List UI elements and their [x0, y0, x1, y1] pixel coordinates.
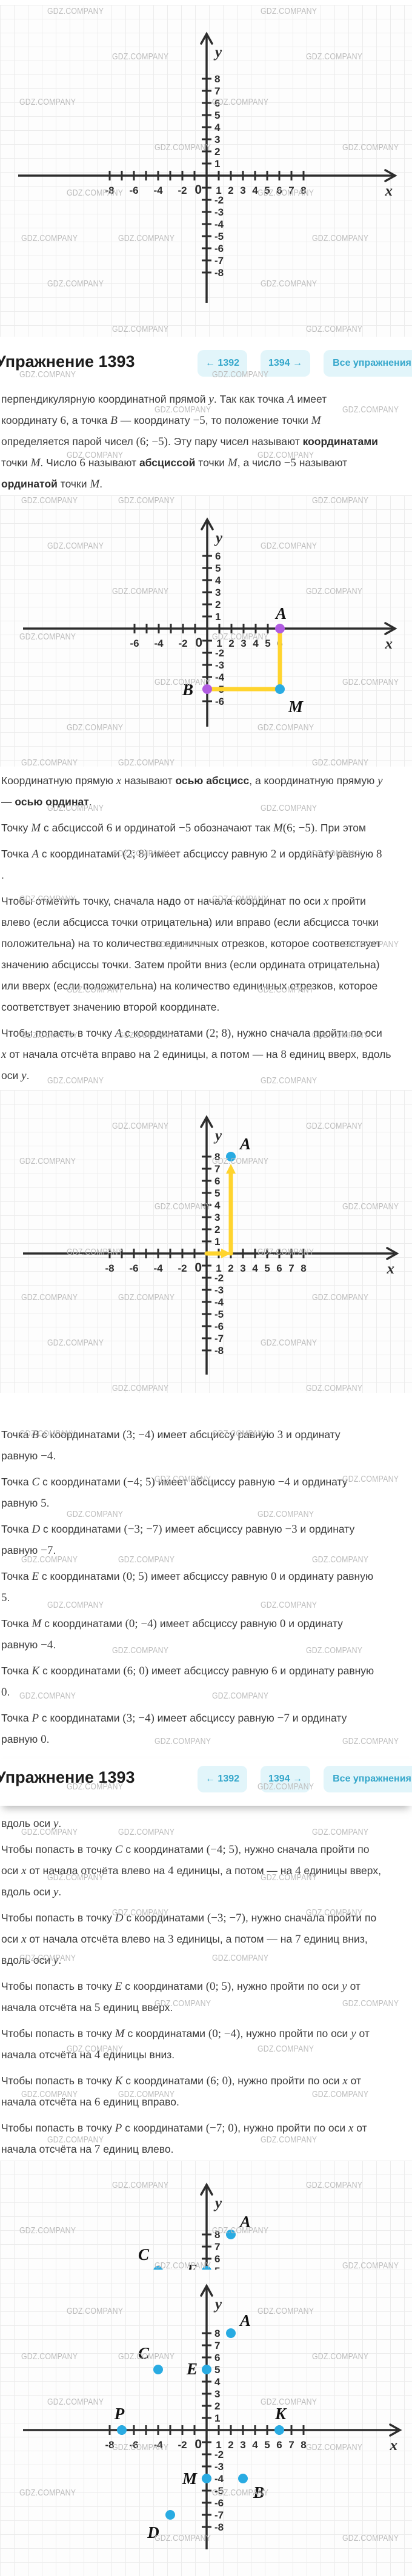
- plot-point: [238, 2474, 248, 2483]
- text-line: Чтобы попасть в точку P с координатами (…: [1, 2118, 412, 2139]
- plot-point: [226, 2230, 236, 2239]
- paragraph: Точка E с координатами (0; 5) имеет абсц…: [1, 1566, 412, 1608]
- paragraph: Точка B с координатами (3; −4) имеет абс…: [1, 1424, 412, 1467]
- text-line: Точка P с координатами (3; −4) имеет абс…: [1, 1708, 412, 1729]
- all-exercises-button[interactable]: Все упражнения: [324, 350, 412, 377]
- paragraph: Чтобы попасть в точку K с координатами (…: [1, 2070, 412, 2113]
- text-line: определяется парой чисел (6; −5). Эту па…: [1, 431, 412, 452]
- text-line: равную 0.: [1, 1729, 412, 1750]
- text-line: Точка C с координатами (−4; 5) имеет абс…: [1, 1471, 412, 1493]
- text-line: начала отсчёта на 5 единиц вверх.: [1, 1997, 412, 2018]
- y-tick-label: 5: [214, 1187, 220, 1199]
- text-line: Чтобы попасть в точку A с координатами (…: [1, 1023, 412, 1044]
- y-tick-label: -2: [214, 194, 224, 206]
- paragraph: Чтобы попасть в точку C с координатами (…: [1, 1839, 412, 1903]
- x-tick-label: -4: [153, 2439, 163, 2451]
- next-exercise-button[interactable]: 1394 →: [261, 1766, 310, 1792]
- text-line: вдоль оси y.: [1, 1950, 412, 1971]
- y-tick-label: 2: [215, 599, 221, 610]
- text-line: координату 6, а точка B — координату −5,…: [1, 410, 412, 431]
- y-tick-label: 2: [214, 146, 220, 157]
- coordinate-plane-a28: -8-6-4-21234567887654321-2-3-4-5-6-7-80x…: [0, 1090, 412, 1393]
- point-label: A: [239, 2213, 251, 2231]
- plot-point: [226, 1152, 236, 1161]
- y-axis-title: y: [213, 44, 222, 61]
- origin-label: 0: [194, 183, 202, 197]
- y-tick-label: 6: [214, 1175, 220, 1187]
- plot-point: [274, 2425, 284, 2435]
- y-tick-label: -8: [214, 267, 224, 279]
- x-tick-label: 8: [301, 2439, 306, 2451]
- text-line: вдоль оси y.: [1, 1813, 412, 1834]
- text-line: равную −4.: [1, 1634, 412, 1656]
- y-tick-label: 7: [214, 85, 220, 97]
- paragraph: Координатную прямую x называют осью абсц…: [1, 770, 412, 813]
- y-axis-title: y: [213, 1128, 222, 1144]
- paragraph: перпендикулярную координатной прямой y. …: [1, 389, 412, 495]
- text-line: Чтобы попасть в точку M с координатами (…: [1, 2023, 412, 2044]
- paragraph: Точка D с координатами (−3; −7) имеет аб…: [1, 1519, 412, 1561]
- paragraph: Чтобы отметить точку, сначала надо от на…: [1, 891, 412, 1018]
- coordinate-plane-answer: -8-6-4-21234567887654321-2-3-4-5-6-7-80x…: [0, 2270, 412, 2576]
- paragraph: Точку M с абсциссой 6 и ординатой −5 обо…: [1, 817, 412, 839]
- x-tick-label: 3: [241, 638, 246, 649]
- y-tick-label: 6: [214, 97, 220, 109]
- point-label: B: [253, 2483, 264, 2502]
- path-arrow-head: [226, 1164, 236, 1174]
- y-tick-label: 1: [214, 1236, 220, 1247]
- y-tick-label: 4: [214, 2376, 221, 2388]
- y-tick-label: -2: [214, 1272, 224, 1284]
- x-tick-label: -4: [153, 185, 163, 196]
- x-axis-title: x: [385, 183, 393, 199]
- coordinate-plane-svg: -8-6-4-21234567887654321-2-3-4-5-6-7-80x…: [0, 5, 412, 337]
- x-tick-label: 6: [276, 2439, 282, 2451]
- point-label: A: [239, 1135, 251, 1153]
- y-tick-label: -7: [214, 2509, 224, 2521]
- point-label: A: [274, 604, 287, 623]
- y-axis-title: y: [213, 2195, 222, 2211]
- next-exercise-button[interactable]: 1394 →: [261, 350, 310, 377]
- x-tick-label: 4: [252, 1263, 258, 1274]
- paragraph: Точка C с координатами (−4; 5) имеет абс…: [1, 1471, 412, 1514]
- x-axis-title: x: [387, 1261, 395, 1277]
- y-tick-label: 2: [214, 2400, 220, 2412]
- text-line: 0.: [1, 1682, 412, 1703]
- text-line: оси x от начала отсчёта влево на 4 едини…: [1, 1860, 412, 1881]
- text-line: оси y.: [1, 1065, 412, 1086]
- text-line: Чтобы попасть в точку K с координатами (…: [1, 2070, 412, 2092]
- x-tick-label: 2: [228, 1263, 233, 1274]
- x-tick-label: -2: [178, 638, 187, 649]
- point-label: C: [138, 2344, 150, 2362]
- point-label: P: [114, 2405, 125, 2423]
- y-tick-label: 6: [214, 2253, 220, 2265]
- y-tick-label: -3: [214, 206, 224, 218]
- text-line: Точка B с координатами (3; −4) имеет абс…: [1, 1424, 412, 1445]
- text-line: влево (если абсцисса точки отрицательна)…: [1, 912, 412, 933]
- plot-point: [165, 2510, 175, 2520]
- x-tick-label: 2: [228, 638, 234, 649]
- y-tick-label: 3: [214, 1212, 220, 1223]
- plot-point: [202, 2474, 211, 2483]
- plot-point: [117, 2425, 127, 2435]
- x-tick-label: 6: [276, 1263, 282, 1274]
- x-tick-label: 2: [228, 2439, 233, 2451]
- point-label: E: [186, 2261, 198, 2270]
- x-tick-label: -8: [105, 2439, 114, 2451]
- coordinate-plane-svg: -8-6-4-21234567887654321-2-3-4-5-6-7-80x…: [0, 2270, 412, 2576]
- plot-point: [153, 2365, 163, 2374]
- y-tick-label: 4: [215, 575, 221, 586]
- point-label: A: [239, 2311, 251, 2330]
- y-tick-label: -7: [214, 1333, 224, 1344]
- y-tick-label: -6: [215, 696, 224, 707]
- paragraph: вдоль оси y.: [1, 1813, 412, 1834]
- text-line: равную −4.: [1, 1445, 412, 1467]
- text-line: 5.: [1, 1587, 412, 1608]
- y-tick-label: -8: [214, 1345, 224, 1356]
- plot-point: [226, 2328, 236, 2338]
- y-axis-title: y: [213, 2296, 222, 2313]
- paragraph: Точка P с координатами (3; −4) имеет абс…: [1, 1708, 412, 1750]
- coordinate-plane-svg: -6-4-2123456654321-2-3-4-5-60xyABM: [0, 495, 412, 767]
- x-tick-label: -6: [129, 1263, 138, 1274]
- y-tick-label: 2: [214, 1224, 220, 1235]
- paragraph: Точка K с координатами (6; 0) имеет абсц…: [1, 1660, 412, 1703]
- x-tick-label: -6: [130, 638, 139, 649]
- y-tick-label: 5: [214, 2364, 220, 2376]
- origin-label: 0: [195, 636, 202, 650]
- text-line: Точка K с координатами (6; 0) имеет абсц…: [1, 1660, 412, 1682]
- x-tick-label: 3: [240, 185, 245, 196]
- y-tick-label: 1: [214, 158, 220, 170]
- y-tick-label: 8: [214, 73, 220, 85]
- text-line: Точка E с координатами (0; 5) имеет абсц…: [1, 1566, 412, 1587]
- x-tick-label: 8: [301, 185, 306, 196]
- x-axis-title: x: [385, 636, 393, 652]
- text-line: оси x от начала отсчёта влево на 3 едини…: [1, 1929, 412, 1950]
- y-tick-label: 4: [214, 1200, 221, 1211]
- x-tick-label: 5: [264, 185, 270, 196]
- y-tick-label: -4: [214, 1296, 224, 1308]
- coordinate-plane-svg: -8-6-4-21234567887654321-2-3-4-5-6-7-80x…: [0, 2161, 412, 2270]
- point-label: M: [288, 698, 304, 716]
- origin-label: 0: [194, 2437, 202, 2451]
- text-line: x от начала отсчёта вправо на 2 единицы,…: [1, 1044, 412, 1065]
- y-tick-label: -5: [214, 2485, 224, 2497]
- y-tick-label: -7: [214, 255, 224, 266]
- x-tick-label: 3: [240, 2439, 245, 2451]
- text-line: положительна) на то количество единичных…: [1, 933, 412, 954]
- x-tick-label: -4: [154, 638, 164, 649]
- text-line: ординатой точки M.: [1, 474, 412, 495]
- text-line: начала отсчёта на 6 единиц вправо.: [1, 2092, 412, 2113]
- text-line: .: [1, 865, 412, 886]
- y-tick-label: 7: [214, 2340, 220, 2351]
- point-label: C: [138, 2245, 150, 2264]
- plot-point: [202, 684, 212, 694]
- text-line: соответствует значению второй координате…: [1, 997, 412, 1018]
- coordinate-plane-svg: -8-6-4-21234567887654321-2-3-4-5-6-7-80x…: [0, 1090, 412, 1393]
- y-tick-label: -4: [215, 672, 225, 683]
- explanation-text-a: перпендикулярную координатной прямой y. …: [0, 389, 412, 495]
- x-tick-label: -4: [153, 1263, 163, 1274]
- y-axis-title: y: [214, 530, 223, 546]
- x-tick-label: 8: [301, 1263, 306, 1274]
- point-label: D: [147, 2523, 159, 2541]
- x-tick-label: 7: [288, 2439, 294, 2451]
- x-tick-label: -6: [129, 185, 138, 196]
- y-tick-label: -3: [215, 659, 224, 671]
- y-tick-label: 3: [215, 587, 221, 598]
- right-arrow-icon: →: [293, 358, 302, 368]
- text-line: Точка A с координатами (2; 8) имеет абсц…: [1, 844, 412, 865]
- paragraph: Чтобы попасть в точку A с координатами (…: [1, 1023, 412, 1086]
- y-tick-label: 6: [214, 2352, 220, 2363]
- y-tick-label: -4: [214, 2473, 224, 2485]
- paragraph: Точка A с координатами (2; 8) имеет абсц…: [1, 844, 412, 886]
- text-line: Чтобы отметить точку, сначала надо от на…: [1, 891, 412, 912]
- y-tick-label: -4: [214, 219, 224, 230]
- x-tick-label: 5: [264, 1263, 270, 1274]
- plot-point: [275, 624, 285, 633]
- x-tick-label: 2: [228, 185, 233, 196]
- prev-exercise-number: 1392: [218, 358, 239, 368]
- paragraph: Чтобы попасть в точку D с координатами (…: [1, 1907, 412, 1971]
- paragraph: Чтобы попасть в точку M с координатами (…: [1, 2023, 412, 2066]
- text-line: Чтобы попасть в точку C с координатами (…: [1, 1839, 412, 1860]
- plot-point: [202, 2365, 211, 2374]
- text-line: значению абсциссы точки. Затем пройти вн…: [1, 954, 412, 976]
- y-tick-label: 1: [214, 2413, 220, 2424]
- y-tick-label: 6: [215, 550, 221, 562]
- left-arrow-icon: ←: [205, 358, 215, 368]
- point-label: B: [182, 681, 193, 699]
- paragraph: Чтобы попасть в точку P с координатами (…: [1, 2118, 412, 2160]
- text-line: начала отсчёта на 4 единицы вниз.: [1, 2044, 412, 2066]
- y-tick-label: 5: [214, 2265, 220, 2270]
- text-line: Точка M с координатами (0; −4) имеет абс…: [1, 1613, 412, 1634]
- explanation-text-b: Координатную прямую x называют осью абсц…: [0, 770, 412, 1086]
- y-tick-label: -2: [214, 2449, 224, 2460]
- explanation-text-c: Точка B с координатами (3; −4) имеет абс…: [0, 1424, 412, 1750]
- left-arrow-icon: ←: [205, 1774, 215, 1784]
- x-tick-label: 4: [252, 185, 258, 196]
- origin-label: 0: [194, 1261, 202, 1275]
- right-arrow-icon: →: [293, 1774, 302, 1784]
- y-tick-label: -6: [214, 243, 224, 254]
- text-line: начала отсчёта на 7 единиц влево.: [1, 2139, 412, 2160]
- prev-exercise-button[interactable]: ← 1392: [198, 350, 247, 377]
- x-tick-label: -2: [178, 1263, 187, 1274]
- y-tick-label: 3: [214, 134, 220, 145]
- text-line: вдоль оси y.: [1, 1881, 412, 1903]
- x-tick-label: -6: [129, 2439, 138, 2451]
- text-line: точки M. Число 6 называют абсциссой точк…: [1, 452, 412, 474]
- text-line: Координатную прямую x называют осью абсц…: [1, 770, 412, 791]
- y-tick-label: 5: [215, 563, 221, 574]
- point-label: K: [274, 2405, 287, 2423]
- x-tick-label: 4: [252, 2439, 258, 2451]
- exercise-header-sticky: Упражнение 1393 ← 1392 1394 → Все упражн…: [0, 1759, 412, 1806]
- exercise-page: -8-6-4-21234567887654321-2-3-4-5-6-7-80x…: [0, 0, 412, 2576]
- text-line: Точка D с координатами (−3; −7) имеет аб…: [1, 1519, 412, 1540]
- plot-point: [275, 684, 285, 694]
- y-tick-label: -6: [214, 1321, 224, 1332]
- y-tick-label: 8: [214, 1151, 220, 1163]
- y-tick-label: 5: [214, 110, 220, 121]
- text-line: Чтобы попасть в точку E с координатами (…: [1, 1976, 412, 1997]
- y-tick-label: -5: [214, 1309, 224, 1320]
- y-tick-label: -8: [214, 2522, 224, 2533]
- y-tick-label: 4: [214, 122, 221, 133]
- x-tick-label: 7: [288, 185, 294, 196]
- x-tick-label: -2: [178, 185, 187, 196]
- coordinate-plane-answer-partial: -8-6-4-21234567887654321-2-3-4-5-6-7-80x…: [0, 2161, 412, 2270]
- x-tick-label: 3: [240, 1263, 245, 1274]
- explanation-text-d: вдоль оси y.Чтобы попасть в точку C с ко…: [0, 1813, 412, 2160]
- text-line: Чтобы попасть в точку D с координатами (…: [1, 1907, 412, 1929]
- text-line: Точку M с абсциссой 6 и ординатой −5 обо…: [1, 817, 412, 839]
- coordinate-plane-empty: -8-6-4-21234567887654321-2-3-4-5-6-7-80x…: [0, 5, 412, 337]
- all-exercises-button[interactable]: Все упражнения: [324, 1766, 412, 1792]
- x-tick-label: -2: [178, 2439, 187, 2451]
- prev-exercise-button[interactable]: ← 1392: [198, 1766, 247, 1792]
- x-tick-label: 7: [288, 1263, 294, 1274]
- prev-exercise-number: 1392: [218, 1774, 239, 1784]
- y-tick-label: -6: [214, 2497, 224, 2509]
- point-label: E: [186, 2360, 198, 2378]
- next-exercise-number: 1394: [268, 1774, 290, 1784]
- text-line: перпендикулярную координатной прямой y. …: [1, 389, 412, 410]
- paragraph: Точка M с координатами (0; −4) имеет абс…: [1, 1613, 412, 1656]
- y-tick-label: -2: [215, 647, 224, 659]
- exercise-header: Упражнение 1393 ← 1392 1394 → Все упражн…: [0, 343, 412, 380]
- text-line: равную 5.: [1, 1493, 412, 1514]
- y-tick-label: 8: [214, 2229, 220, 2241]
- y-tick-label: 8: [214, 2328, 220, 2339]
- x-tick-label: 5: [264, 2439, 270, 2451]
- y-tick-label: 1: [215, 611, 221, 623]
- paragraph: Чтобы попасть в точку E с координатами (…: [1, 1976, 412, 2018]
- x-tick-label: 6: [276, 185, 282, 196]
- text-line: — осью ординат.: [1, 791, 412, 813]
- y-tick-label: -3: [214, 2461, 224, 2472]
- x-axis-title: x: [390, 2437, 398, 2454]
- next-exercise-number: 1394: [268, 358, 290, 368]
- text-line: или вверх (если положительна) на количес…: [1, 976, 412, 997]
- x-tick-label: 4: [253, 638, 259, 649]
- y-tick-label: -3: [214, 1284, 224, 1296]
- y-tick-label: 3: [214, 2388, 220, 2400]
- y-tick-label: 7: [214, 2241, 220, 2253]
- point-label: M: [182, 2469, 198, 2488]
- y-tick-label: -5: [214, 231, 224, 242]
- x-tick-label: 5: [265, 638, 270, 649]
- x-tick-label: -8: [105, 185, 114, 196]
- x-tick-label: -8: [105, 1263, 114, 1274]
- coordinate-plane-abm: -6-4-2123456654321-2-3-4-5-60xyABM: [0, 495, 412, 767]
- y-tick-label: 7: [214, 1163, 220, 1175]
- text-line: равную −7.: [1, 1540, 412, 1561]
